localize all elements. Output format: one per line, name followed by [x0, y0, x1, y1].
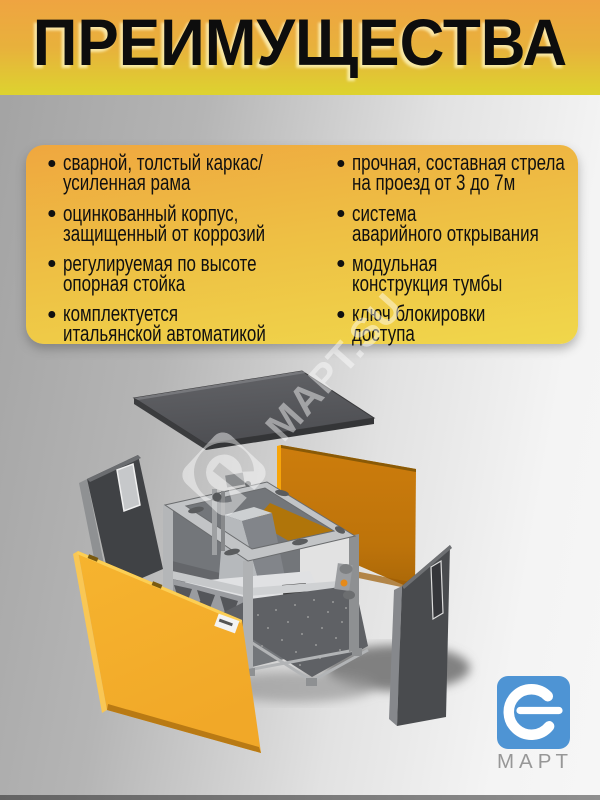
- svg-text:МАРТ: МАРТ: [497, 750, 573, 773]
